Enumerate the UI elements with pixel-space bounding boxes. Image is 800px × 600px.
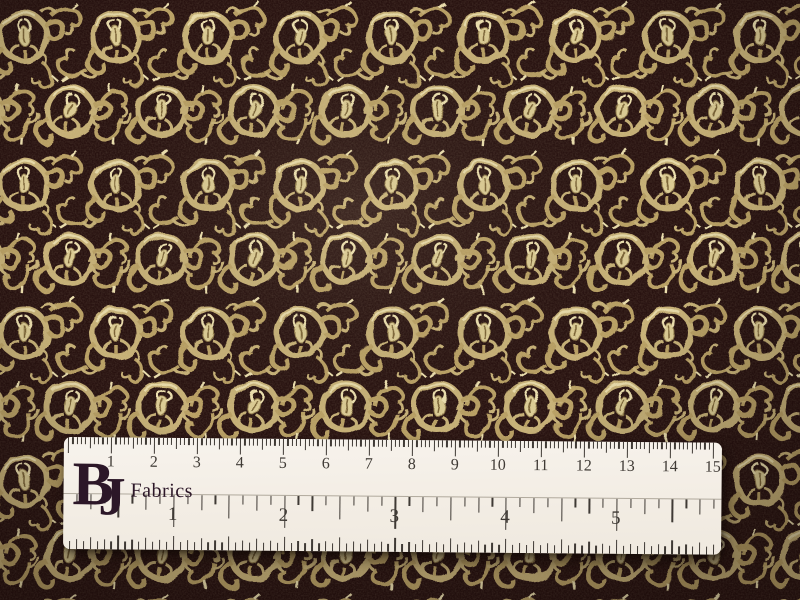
- top-tick: [403, 440, 404, 447]
- hang-tick: [575, 498, 576, 507]
- top-tick: [636, 442, 637, 449]
- top-tick: [709, 443, 710, 450]
- top-tick: [150, 438, 151, 445]
- rise-tick: [277, 543, 278, 551]
- top-tick: [455, 440, 456, 456]
- top-tick: [593, 442, 594, 449]
- hang-tick: [589, 499, 590, 514]
- hang-tick: [339, 496, 340, 519]
- top-tick: [472, 441, 473, 448]
- rise-tick: [291, 543, 292, 551]
- top-tick: [214, 438, 215, 445]
- top-tick: [468, 441, 469, 448]
- rise-tick: [498, 545, 499, 553]
- top-tick: [240, 439, 241, 455]
- top-tick: [511, 441, 512, 448]
- rise-tick: [83, 541, 84, 549]
- inch-number: 2: [279, 505, 289, 527]
- rise-tick: [491, 543, 492, 553]
- top-tick: [524, 441, 525, 448]
- rise-tick: [471, 545, 472, 553]
- top-tick: [335, 439, 336, 446]
- top-tick: [171, 438, 172, 445]
- top-tick: [81, 437, 82, 444]
- top-tick: [283, 439, 284, 455]
- top-tick: [558, 441, 559, 448]
- rise-tick: [415, 544, 416, 552]
- top-tick: [623, 442, 624, 449]
- top-tick: [382, 440, 383, 447]
- cm-number: 15: [705, 459, 721, 477]
- rise-tick: [346, 543, 347, 551]
- rise-tick: [69, 541, 70, 549]
- bj-fabrics-logo: B J Fabrics: [72, 457, 243, 538]
- top-tick: [691, 442, 692, 453]
- brand-letter-j: J: [98, 469, 125, 523]
- top-tick: [648, 442, 649, 453]
- rise-tick: [706, 547, 707, 555]
- top-tick: [416, 440, 417, 447]
- top-tick: [494, 441, 495, 448]
- rise-tick: [311, 539, 312, 551]
- top-tick: [274, 439, 275, 446]
- top-tick: [266, 439, 267, 446]
- rise-tick: [581, 546, 582, 554]
- rise-tick: [104, 539, 105, 549]
- hang-tick: [298, 496, 299, 505]
- rise-tick: [561, 539, 562, 553]
- top-tick: [545, 441, 546, 448]
- rise-tick: [221, 542, 222, 550]
- top-tick: [227, 438, 228, 445]
- top-tick: [154, 438, 155, 454]
- top-tick: [618, 442, 619, 449]
- rise-tick: [117, 535, 118, 549]
- top-tick: [464, 440, 465, 447]
- cm-number: 5: [279, 455, 287, 473]
- cm-number: 14: [662, 458, 678, 476]
- rise-tick: [450, 538, 451, 552]
- top-tick: [330, 439, 331, 446]
- hang-tick: [644, 499, 645, 514]
- top-tick: [365, 440, 366, 447]
- top-tick: [679, 442, 680, 449]
- rise-tick: [242, 541, 243, 551]
- top-tick: [610, 442, 611, 449]
- top-tick: [571, 441, 572, 448]
- rise-tick: [478, 541, 479, 553]
- rise-tick: [353, 542, 354, 552]
- cm-number: 9: [451, 456, 459, 474]
- top-tick: [206, 438, 207, 445]
- rise-tick: [263, 543, 264, 551]
- top-tick: [408, 440, 409, 447]
- top-tick: [77, 437, 78, 444]
- top-tick: [567, 441, 568, 448]
- rise-tick: [588, 542, 589, 554]
- rise-tick: [145, 538, 146, 550]
- rise-tick: [387, 544, 388, 552]
- rise-tick: [297, 541, 298, 551]
- top-tick: [532, 441, 533, 448]
- rise-tick: [443, 544, 444, 552]
- top-tick: [369, 440, 370, 456]
- cm-number: 12: [576, 457, 592, 475]
- rise-tick: [651, 546, 652, 554]
- hang-tick: [450, 497, 451, 520]
- top-tick: [296, 439, 297, 446]
- rise-tick: [602, 544, 603, 554]
- rise-tick: [568, 545, 569, 553]
- top-tick: [347, 439, 348, 450]
- cm-number: 6: [322, 455, 330, 473]
- rise-tick: [554, 545, 555, 553]
- rise-tick: [318, 543, 319, 551]
- cm-number: 13: [619, 458, 635, 476]
- rise-tick: [194, 542, 195, 550]
- rise-tick: [422, 540, 423, 552]
- top-tick: [89, 437, 90, 448]
- top-tick: [115, 437, 116, 444]
- top-tick: [601, 442, 602, 449]
- top-tick: [128, 438, 129, 445]
- rise-tick: [214, 540, 215, 550]
- rise-tick: [457, 544, 458, 552]
- top-tick: [313, 439, 314, 446]
- top-tick: [696, 443, 697, 450]
- top-tick: [253, 439, 254, 446]
- top-tick: [356, 440, 357, 447]
- rise-tick: [436, 542, 437, 552]
- hang-tick: [326, 496, 327, 505]
- top-tick: [107, 437, 108, 444]
- top-tick: [489, 441, 490, 448]
- rise-tick: [623, 546, 624, 554]
- top-tick: [425, 440, 426, 447]
- rise-tick: [207, 542, 208, 550]
- rise-tick: [540, 545, 541, 553]
- top-tick: [193, 438, 194, 445]
- top-tick: [322, 439, 323, 446]
- rise-tick: [484, 545, 485, 553]
- rise-tick: [464, 542, 465, 552]
- inch-number: 5: [611, 508, 621, 530]
- top-tick: [201, 438, 202, 445]
- top-tick: [292, 439, 293, 446]
- top-tick: [180, 438, 181, 445]
- top-tick: [197, 438, 198, 454]
- rise-tick: [235, 542, 236, 550]
- rise-tick: [609, 546, 610, 554]
- rise-tick: [284, 537, 285, 551]
- inch-number: 4: [500, 507, 510, 529]
- hang-tick: [270, 496, 271, 505]
- top-tick: [184, 438, 185, 445]
- rise-tick: [658, 544, 659, 554]
- top-tick: [528, 441, 529, 448]
- top-tick: [498, 441, 499, 457]
- top-tick: [550, 441, 551, 448]
- rise-tick: [408, 542, 409, 552]
- rise-tick: [304, 543, 305, 551]
- top-tick: [700, 443, 701, 450]
- top-tick: [451, 440, 452, 447]
- top-tick: [476, 441, 477, 452]
- rise-tick: [637, 546, 638, 554]
- top-tick: [657, 442, 658, 449]
- top-tick: [98, 437, 99, 444]
- top-tick: [231, 438, 232, 445]
- rise-tick: [360, 544, 361, 552]
- hang-tick: [533, 498, 534, 513]
- top-tick: [429, 440, 430, 447]
- hang-tick: [464, 497, 465, 506]
- top-tick: [562, 441, 563, 452]
- top-tick: [218, 438, 219, 449]
- top-tick: [481, 441, 482, 448]
- rise-tick: [512, 545, 513, 553]
- rise-tick: [332, 543, 333, 551]
- top-tick: [270, 439, 271, 446]
- top-tick: [339, 439, 340, 446]
- top-tick: [421, 440, 422, 447]
- rise-tick: [401, 544, 402, 552]
- top-tick: [373, 440, 374, 447]
- cm-number: 11: [533, 457, 549, 475]
- top-tick: [395, 440, 396, 447]
- hang-tick: [672, 499, 673, 522]
- rise-tick: [339, 537, 340, 551]
- top-tick: [244, 439, 245, 446]
- hang-tick: [367, 497, 368, 512]
- top-tick: [137, 438, 138, 445]
- rise-tick: [616, 540, 617, 554]
- top-tick: [85, 437, 86, 444]
- top-tick: [674, 442, 675, 449]
- top-tick: [158, 438, 159, 445]
- hang-tick: [256, 496, 257, 511]
- top-tick: [433, 440, 434, 451]
- hang-tick: [603, 499, 604, 508]
- hang-tick: [381, 497, 382, 506]
- rise-tick: [671, 540, 672, 554]
- rise-tick: [381, 542, 382, 552]
- top-tick: [640, 442, 641, 449]
- top-tick: [378, 440, 379, 447]
- top-tick: [446, 440, 447, 447]
- rise-tick: [595, 546, 596, 554]
- top-tick: [575, 441, 576, 448]
- top-tick: [300, 439, 301, 446]
- top-tick: [326, 439, 327, 455]
- top-tick: [94, 437, 95, 444]
- top-tick: [249, 439, 250, 446]
- hang-tick: [547, 498, 548, 507]
- top-tick: [666, 442, 667, 449]
- top-tick: [683, 442, 684, 449]
- rise-tick: [505, 539, 506, 553]
- rise-tick: [131, 540, 132, 550]
- rise-tick: [138, 542, 139, 550]
- top-tick: [390, 440, 391, 451]
- top-tick: [145, 438, 146, 445]
- rise-tick: [644, 542, 645, 554]
- bj-fabrics-ruler: 123456789101112131415 12345 B J Fabrics: [63, 437, 722, 555]
- top-tick: [210, 438, 211, 445]
- top-tick: [438, 440, 439, 447]
- top-tick: [188, 438, 189, 445]
- rise-tick: [367, 540, 368, 552]
- top-tick: [713, 443, 714, 459]
- top-tick: [459, 440, 460, 447]
- top-tick: [309, 439, 310, 446]
- top-tick: [670, 442, 671, 458]
- rise-tick: [249, 543, 250, 551]
- hang-tick: [478, 498, 479, 513]
- cm-number: 7: [365, 456, 373, 474]
- top-tick: [614, 442, 615, 449]
- hang-tick: [686, 499, 687, 508]
- fabric-photo: 123456789101112131415 12345 B J Fabrics: [0, 0, 800, 600]
- top-tick: [236, 438, 237, 445]
- rise-tick: [228, 536, 229, 550]
- top-tick: [519, 441, 520, 452]
- top-tick: [661, 442, 662, 449]
- rise-tick: [429, 544, 430, 552]
- top-tick: [631, 442, 632, 449]
- rise-tick: [713, 545, 714, 555]
- top-tick: [541, 441, 542, 457]
- top-tick: [132, 438, 133, 449]
- hang-tick: [436, 497, 437, 506]
- top-tick: [386, 440, 387, 447]
- hang-tick: [519, 498, 520, 507]
- hang-tick: [658, 499, 659, 508]
- rise-tick: [159, 540, 160, 550]
- top-tick: [588, 442, 589, 449]
- rise-tick: [325, 541, 326, 551]
- hang-tick: [353, 497, 354, 506]
- rise-tick: [664, 546, 665, 554]
- rise-tick: [90, 537, 91, 549]
- rise-tick: [180, 542, 181, 550]
- rise-tick: [270, 541, 271, 551]
- top-tick: [68, 437, 69, 453]
- brand-name: Fabrics: [130, 480, 193, 504]
- hang-tick: [312, 496, 313, 511]
- rise-tick: [76, 539, 77, 549]
- top-tick: [627, 442, 628, 458]
- top-tick: [141, 438, 142, 445]
- hang-tick: [422, 497, 423, 512]
- inch-number: 3: [389, 506, 399, 528]
- rise-tick: [533, 541, 534, 553]
- top-tick: [287, 439, 288, 446]
- top-tick: [304, 439, 305, 450]
- top-tick: [279, 439, 280, 446]
- rise-tick: [630, 544, 631, 554]
- hang-tick: [713, 500, 714, 509]
- cm-number: 10: [490, 457, 506, 475]
- top-tick: [399, 440, 400, 447]
- top-tick: [442, 440, 443, 447]
- rise-tick: [374, 544, 375, 552]
- rise-tick: [678, 546, 679, 554]
- hang-tick: [409, 497, 410, 506]
- top-tick: [644, 442, 645, 449]
- top-tick: [605, 442, 606, 453]
- hang-tick: [699, 500, 700, 515]
- rise-tick: [166, 542, 167, 550]
- top-tick: [580, 442, 581, 449]
- top-tick: [537, 441, 538, 448]
- rise-tick: [547, 543, 548, 553]
- rise-tick: [187, 540, 188, 550]
- rise-tick: [526, 545, 527, 553]
- hang-tick: [492, 498, 493, 507]
- rise-tick: [201, 538, 202, 550]
- top-tick: [223, 438, 224, 445]
- top-tick: [261, 439, 262, 450]
- cm-number: 8: [408, 456, 416, 474]
- top-tick: [584, 442, 585, 458]
- top-tick: [704, 443, 705, 450]
- top-tick: [653, 442, 654, 449]
- rise-tick: [692, 546, 693, 554]
- top-tick: [352, 440, 353, 447]
- top-tick: [412, 440, 413, 456]
- top-tick: [175, 438, 176, 449]
- hang-tick: [561, 498, 562, 521]
- rise-tick: [519, 543, 520, 553]
- hang-tick: [630, 499, 631, 508]
- rise-tick: [97, 541, 98, 549]
- rise-tick: [574, 543, 575, 553]
- top-tick: [72, 437, 73, 444]
- top-tick: [554, 441, 555, 448]
- rise-tick: [394, 538, 395, 552]
- rise-tick: [124, 542, 125, 550]
- rise-tick: [699, 543, 700, 555]
- hang-tick: [242, 496, 243, 505]
- rise-tick: [110, 541, 111, 549]
- top-tick: [257, 439, 258, 446]
- top-tick: [167, 438, 168, 445]
- rise-tick: [685, 544, 686, 554]
- top-tick: [360, 440, 361, 447]
- top-tick: [317, 439, 318, 446]
- rise-tick: [173, 536, 174, 550]
- top-tick: [597, 442, 598, 449]
- top-tick: [343, 439, 344, 446]
- top-tick: [124, 438, 125, 445]
- top-tick: [687, 442, 688, 449]
- rise-tick: [152, 542, 153, 550]
- top-tick: [163, 438, 164, 445]
- top-tick: [502, 441, 503, 448]
- top-tick: [102, 437, 103, 444]
- rise-tick: [256, 539, 257, 551]
- top-tick: [515, 441, 516, 448]
- top-tick: [507, 441, 508, 448]
- top-tick: [120, 437, 121, 444]
- top-tick: [485, 441, 486, 448]
